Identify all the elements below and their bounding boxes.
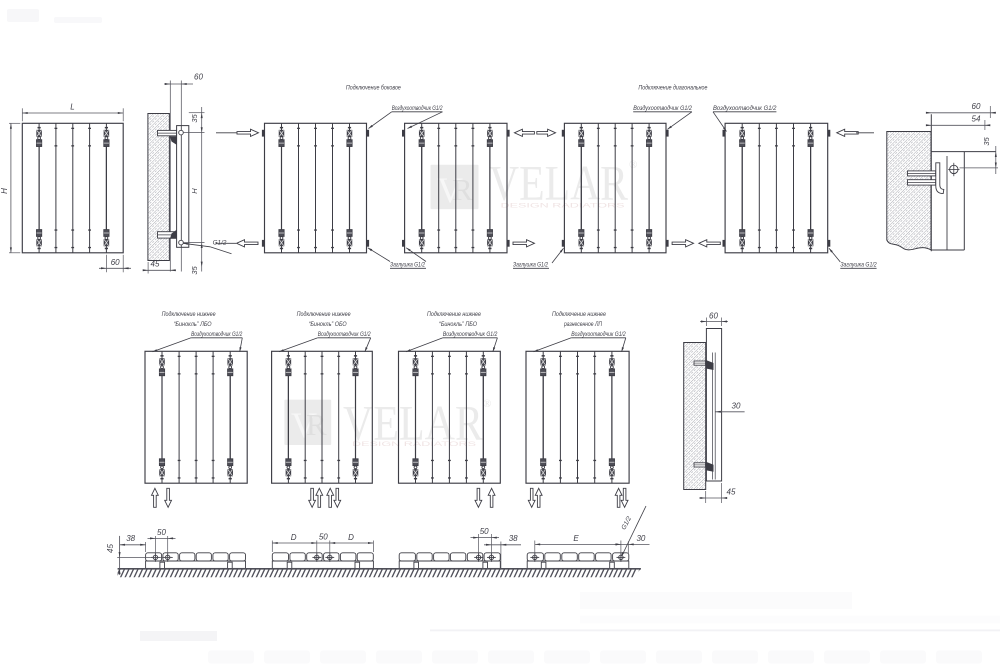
svg-text:45: 45 xyxy=(106,544,115,553)
svg-text:Подключение нижнее: Подключение нижнее xyxy=(297,310,351,318)
svg-text:E: E xyxy=(573,534,579,543)
svg-text:54: 54 xyxy=(972,115,981,124)
svg-text:50: 50 xyxy=(157,528,166,537)
svg-text:60: 60 xyxy=(709,312,718,321)
svg-text:Заглушка G1/2: Заглушка G1/2 xyxy=(840,263,877,269)
svg-text:Заглушка G1/2: Заглушка G1/2 xyxy=(513,263,549,269)
svg-text:Подключение нижнее: Подключение нижнее xyxy=(427,310,481,318)
svg-text:38: 38 xyxy=(509,534,518,543)
svg-text:разнесенное ЛП: разнесенное ЛП xyxy=(563,321,602,328)
svg-text:60: 60 xyxy=(972,102,981,111)
svg-text:D: D xyxy=(291,533,297,542)
svg-text:R: R xyxy=(306,407,327,442)
svg-text:30: 30 xyxy=(636,534,645,543)
svg-text:Подключение диагональное: Подключение диагональное xyxy=(638,83,707,91)
svg-text:“Бинокль” ПБО: “Бинокль” ПБО xyxy=(439,321,477,328)
svg-text:R: R xyxy=(452,172,473,207)
svg-text:D: D xyxy=(348,533,354,542)
svg-text:Воздухоотводчик G1/2: Воздухоотводчик G1/2 xyxy=(318,332,371,338)
svg-text:50: 50 xyxy=(319,533,328,542)
svg-text:®: ® xyxy=(629,159,637,171)
svg-text:Воздухоотводчик G1/2: Воздухоотводчик G1/2 xyxy=(633,106,692,112)
svg-text:Воздухоотводчик G1/2: Воздухоотводчик G1/2 xyxy=(571,332,626,338)
svg-text:Воздухоотводчик G1/2: Воздухоотводчик G1/2 xyxy=(443,332,498,338)
svg-text:50: 50 xyxy=(480,527,489,536)
svg-text:Воздухоотводчик G1/2: Воздухоотводчик G1/2 xyxy=(392,106,443,112)
svg-text:G1/2: G1/2 xyxy=(213,239,227,246)
svg-text:60: 60 xyxy=(194,73,203,82)
svg-text:35: 35 xyxy=(982,137,991,146)
svg-text:“Бинокль” ОБО: “Бинокль” ОБО xyxy=(309,321,347,328)
svg-text:45: 45 xyxy=(151,260,160,269)
svg-text:DESIGN RADIATORS: DESIGN RADIATORS xyxy=(501,204,625,210)
svg-text:Воздухоотводчик G1/2: Воздухоотводчик G1/2 xyxy=(191,332,243,338)
svg-text:Подключение боковое: Подключение боковое xyxy=(346,83,401,91)
svg-text:60: 60 xyxy=(111,258,120,267)
svg-text:30: 30 xyxy=(732,401,741,410)
svg-text:H: H xyxy=(0,188,9,194)
svg-text:L: L xyxy=(70,103,74,112)
svg-text:45: 45 xyxy=(727,488,736,497)
svg-text:Заглушка G1/2: Заглушка G1/2 xyxy=(390,263,426,269)
svg-text:“Бинокль” ЛБО: “Бинокль” ЛБО xyxy=(174,321,212,328)
svg-text:DESIGN RADIATORS: DESIGN RADIATORS xyxy=(352,442,476,448)
svg-text:Подключение нижнее: Подключение нижнее xyxy=(552,310,606,318)
svg-text:Подключение нижнее: Подключение нижнее xyxy=(162,310,216,318)
svg-text:VELAR: VELAR xyxy=(489,155,629,211)
svg-text:38: 38 xyxy=(126,534,135,543)
svg-text:H: H xyxy=(190,188,199,194)
svg-text:Воздухоотводчик G1/2: Воздухоотводчик G1/2 xyxy=(713,106,777,112)
svg-text:®: ® xyxy=(483,398,491,410)
svg-text:35: 35 xyxy=(190,266,199,275)
svg-text:35: 35 xyxy=(190,114,199,123)
